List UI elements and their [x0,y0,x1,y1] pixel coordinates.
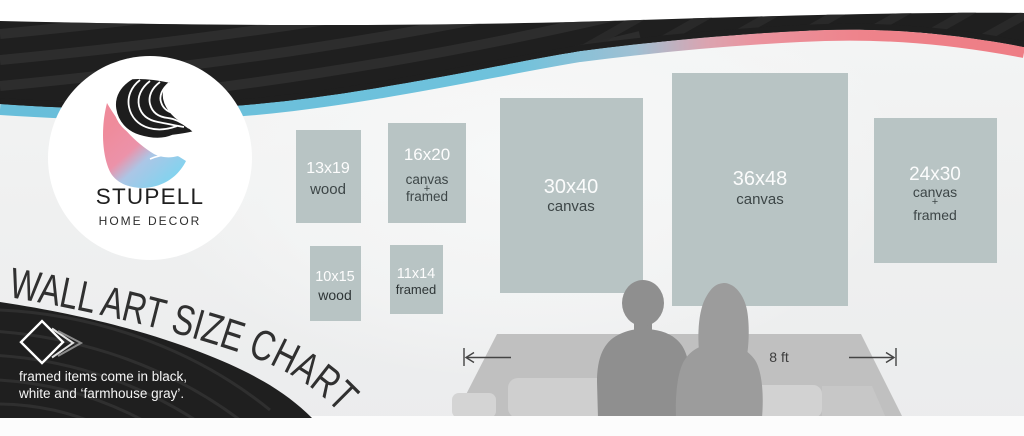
svg-text:canvas: canvas [547,198,595,215]
svg-text:24x30: 24x30 [909,164,961,185]
svg-text:wood: wood [317,287,351,303]
svg-text:framed: framed [406,189,448,204]
svg-text:13x19: 13x19 [306,160,350,177]
svg-text:framed: framed [396,282,436,297]
svg-text:8 ft: 8 ft [769,349,789,365]
svg-text:10x15: 10x15 [315,269,355,285]
svg-text:framed: framed [913,207,957,223]
svg-text:36x48: 36x48 [733,168,788,190]
svg-text:16x20: 16x20 [404,145,450,164]
svg-text:canvas: canvas [736,191,784,208]
svg-text:white and ‘farmhouse gray’.: white and ‘farmhouse gray’. [18,386,184,401]
svg-text:STUPELL: STUPELL [96,184,204,209]
svg-text:framed items come in black,: framed items come in black, [19,369,187,384]
svg-text:wood: wood [309,181,346,198]
svg-text:HOME DECOR: HOME DECOR [99,214,202,228]
svg-text:30x40: 30x40 [544,176,599,198]
svg-text:11x14: 11x14 [397,266,435,282]
